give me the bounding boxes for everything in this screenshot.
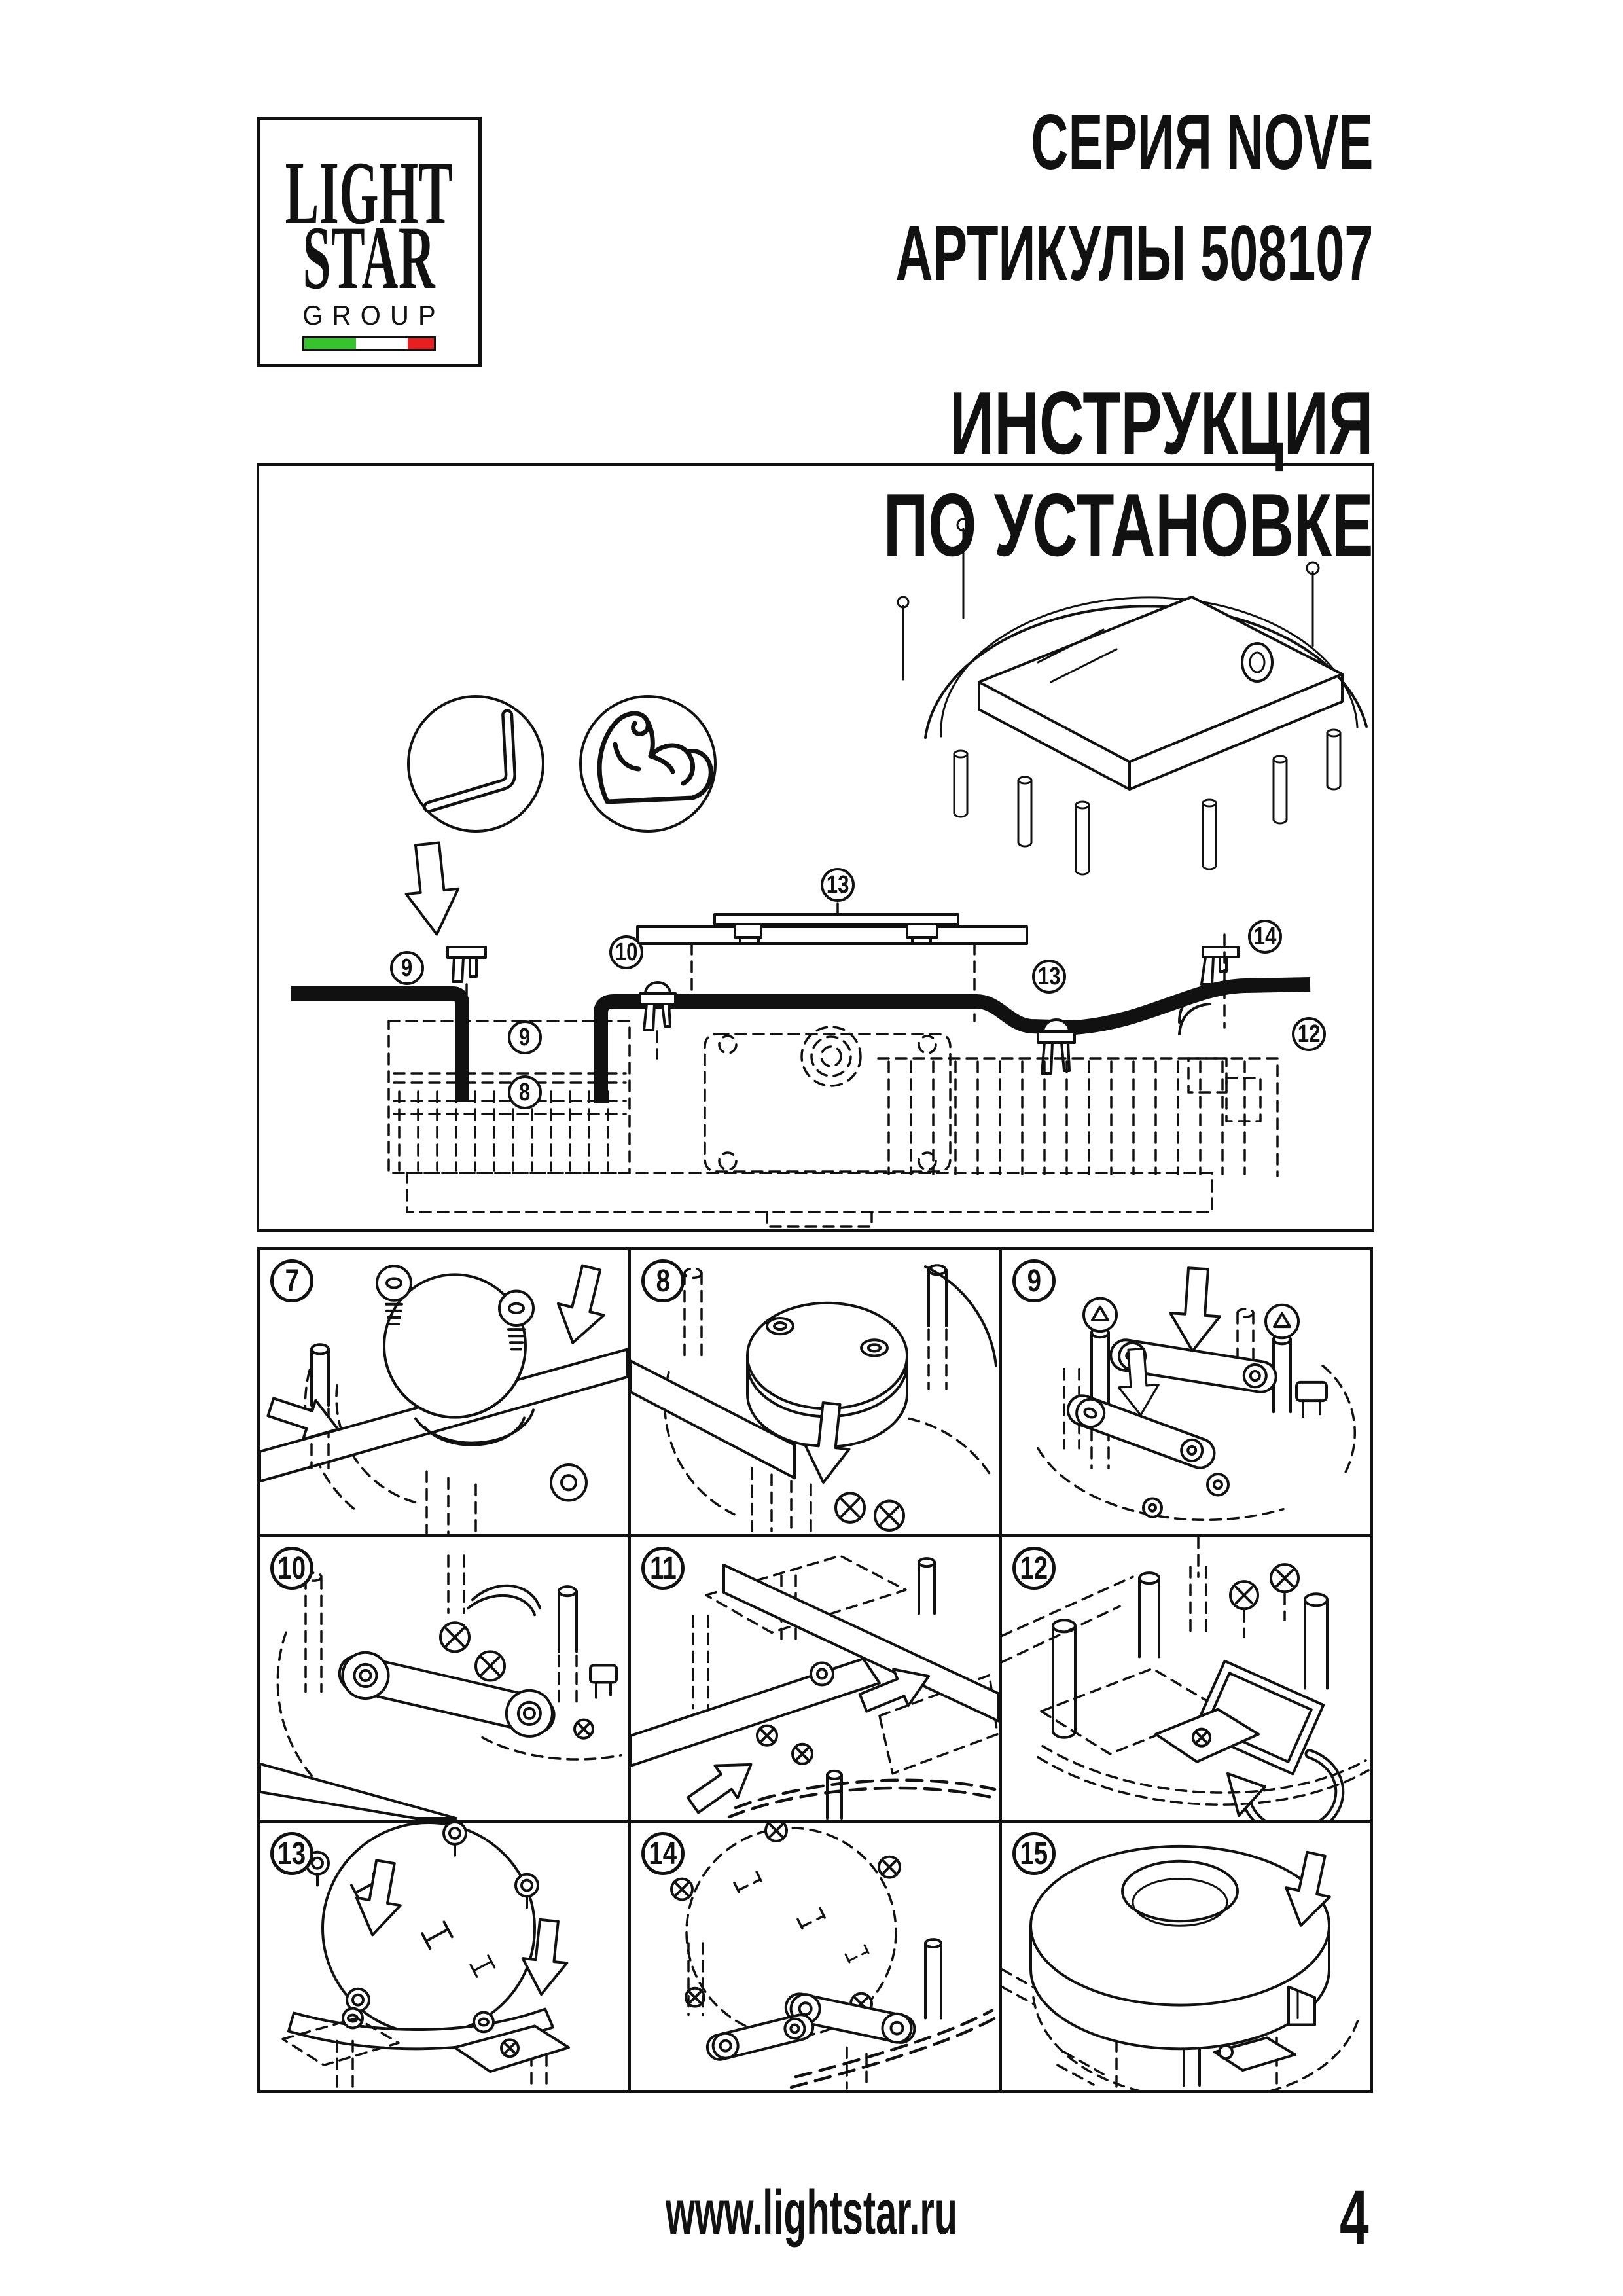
step-number-badge: 13 (270, 1832, 313, 1875)
step-panel-14: 14 (631, 1823, 999, 2090)
fixture-dashed-outline (389, 903, 1277, 1227)
callout-13b: 13 (1032, 960, 1066, 994)
allen-key-icon (408, 696, 543, 831)
down-arrow-icon (401, 841, 463, 937)
ceiling-profile (291, 984, 1310, 1103)
step-11-art (631, 1537, 999, 1820)
overview-diagram-art (259, 466, 1372, 1229)
italian-flag-stripe (302, 336, 436, 351)
step-number-badge: 11 (641, 1547, 685, 1590)
articles-title: АРТИКУЛЫ 508107 (895, 211, 1373, 296)
flag-green (304, 338, 356, 349)
callout-12: 12 (1292, 1017, 1326, 1051)
page-number: 4 (1340, 2173, 1369, 2262)
step-number-badge: 8 (641, 1259, 685, 1302)
lightstar-logo: LIGHT STAR GROUP (257, 117, 482, 367)
flag-white (356, 338, 408, 349)
step-13-art (260, 1823, 628, 2090)
spring-clip-14 (1202, 947, 1238, 984)
callout-9: 9 (390, 951, 424, 985)
step-number-badge: 15 (1012, 1832, 1056, 1875)
step-14-art (631, 1823, 999, 2090)
website-url: www.lightstar.ru (325, 2177, 1298, 2249)
muscle-icon (580, 696, 715, 831)
step-panel-12: 12 (1002, 1537, 1370, 1820)
step-10-art (260, 1537, 628, 1820)
step-9-art (1002, 1250, 1370, 1534)
instruction-page: LIGHT STAR GROUP СЕРИЯ NOVE АРТИКУЛЫ 508… (0, 0, 1623, 2296)
step-panel-7: 7 (260, 1250, 628, 1534)
step-7-art (260, 1250, 628, 1534)
spring-clip-9 (448, 947, 486, 982)
step-panel-9: 9 (1002, 1250, 1370, 1534)
step-panel-8: 8 (631, 1250, 999, 1534)
logo-group: GROUP (293, 302, 445, 329)
step-panel-10: 10 (260, 1537, 628, 1820)
series-title: СЕРИЯ NOVE (895, 99, 1373, 185)
isometric-view (898, 519, 1366, 874)
callout-10: 10 (609, 935, 643, 969)
step-number-badge: 12 (1012, 1547, 1056, 1590)
step-panel-11: 11 (631, 1537, 999, 1820)
step-panel-15: 15 (1002, 1823, 1370, 2090)
instruction-title-line1: ИНСТРУКЦИЯ (866, 372, 1373, 474)
callout-8: 8 (508, 1075, 542, 1109)
overview-diagram: 9 10 9 8 13 13 14 12 (257, 463, 1374, 1232)
callout-9b: 9 (508, 1020, 542, 1054)
step-number-badge: 10 (270, 1547, 313, 1590)
step-15-art (1002, 1823, 1370, 2090)
step-12-art (1002, 1537, 1370, 1820)
installation-steps-grid: 7 8 (257, 1247, 1373, 2093)
step-number-badge: 9 (1012, 1259, 1056, 1302)
logo-star: STAR (303, 225, 436, 290)
callout-13: 13 (821, 868, 855, 902)
flag-red (408, 338, 434, 349)
step-number-badge: 14 (641, 1832, 685, 1875)
step-8-art (631, 1250, 999, 1534)
step-number-badge: 7 (270, 1259, 313, 1302)
step-panel-13: 13 (260, 1823, 628, 2090)
mounting-plate (637, 914, 1027, 944)
callout-14: 14 (1248, 920, 1282, 954)
